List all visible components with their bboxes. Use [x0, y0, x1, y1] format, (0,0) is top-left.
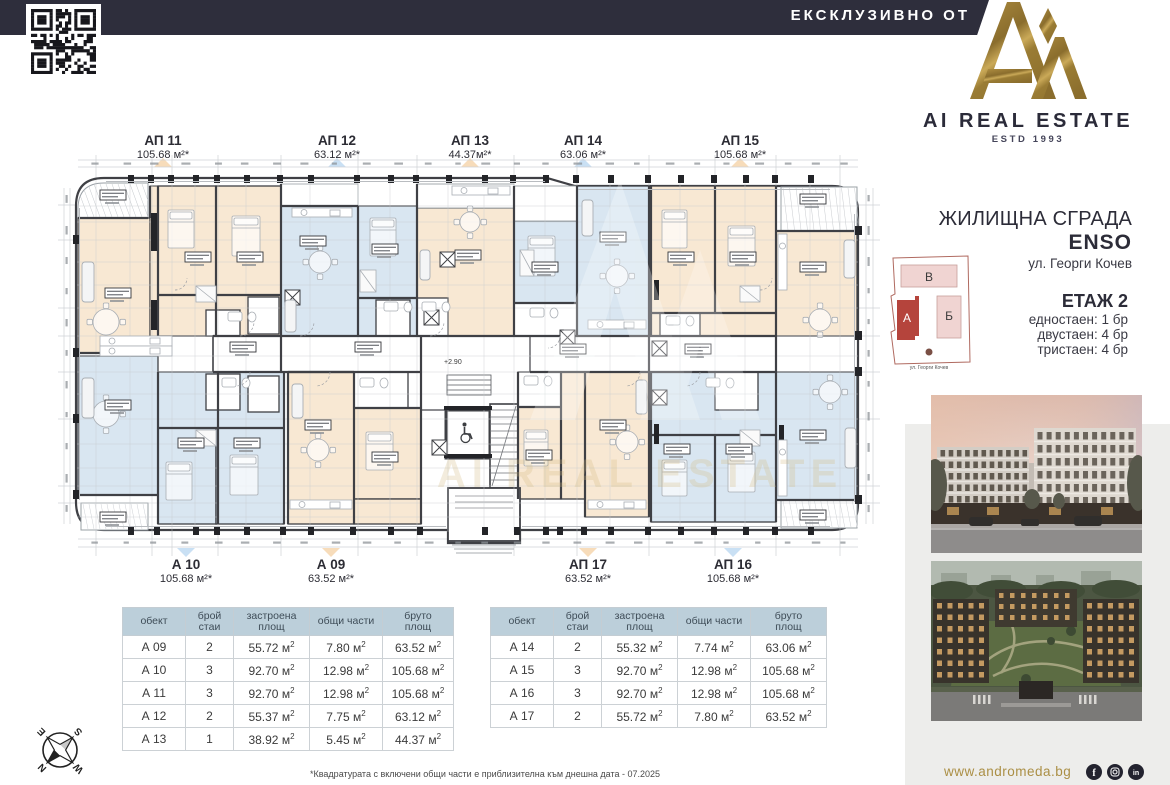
svg-text:AI REAL ESTATE: AI REAL ESTATE [923, 110, 1133, 132]
svg-text:+2.90: +2.90 [444, 359, 462, 366]
svg-text:А: А [903, 311, 911, 325]
svg-text:Б: Б [945, 309, 953, 323]
svg-text:ул. Георги Кочев: ул. Георги Кочев [910, 365, 949, 370]
svg-text:AI REAL ESTATE: AI REAL ESTATE [437, 452, 843, 496]
svg-text:S: S [72, 725, 85, 738]
svg-text:ESTD 1993: ESTD 1993 [992, 134, 1065, 145]
svg-text:В: В [925, 270, 933, 284]
svg-text:in: in [1133, 770, 1139, 777]
svg-text:E: E [35, 725, 48, 738]
